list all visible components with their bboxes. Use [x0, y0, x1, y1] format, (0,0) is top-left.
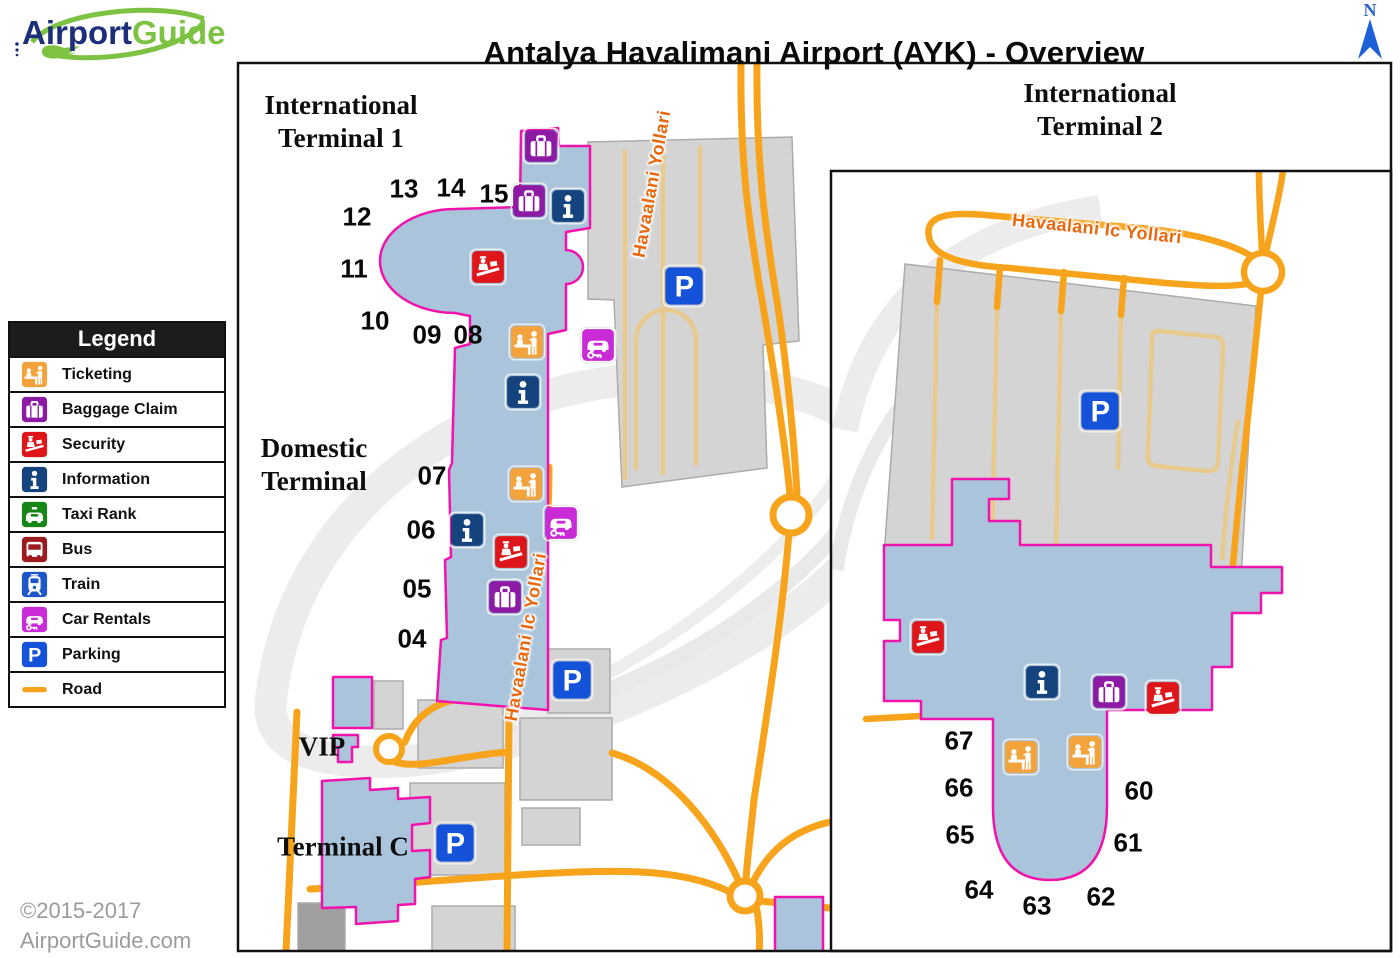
security-icon	[471, 250, 505, 284]
gate-08-label: 08	[454, 320, 483, 351]
logo-text-airport: Airport	[22, 14, 132, 51]
roundabout	[773, 497, 809, 533]
international-terminal-2-label: InternationalTerminal 2	[1023, 77, 1176, 143]
gate-09-label: 09	[413, 320, 442, 351]
copyright-site: AirportGuide.com	[20, 926, 191, 956]
building-dark	[298, 903, 345, 952]
gate-04-label: 04	[398, 624, 427, 655]
bus-icon	[21, 536, 48, 563]
parking-icon	[435, 823, 475, 863]
legend-item-label: Information	[62, 471, 150, 489]
gate-13-label: 13	[390, 174, 419, 205]
legend-row: Information	[10, 461, 224, 496]
logo-dot	[15, 42, 19, 46]
legend-item-label: Car Rentals	[62, 611, 151, 629]
legend-item-label: Security	[62, 436, 125, 454]
gate-67-label: 67	[945, 726, 974, 757]
building	[374, 681, 403, 729]
compass-n-label: N	[1344, 1, 1396, 19]
baggage-icon	[524, 129, 558, 163]
parking-icon	[21, 641, 48, 668]
gate-65-label: 65	[946, 820, 975, 851]
terminal-c-label: Terminal C	[277, 831, 409, 864]
gate-12-label: 12	[343, 202, 372, 233]
legend-row: Ticketing	[10, 356, 224, 391]
gate-66-label: 66	[945, 773, 974, 804]
gate-05-label: 05	[403, 574, 432, 605]
domestic-terminal-label: DomesticTerminal	[261, 432, 367, 498]
building	[520, 718, 612, 800]
legend-row: Baggage Claim	[10, 391, 224, 426]
gate-15-label: 15	[480, 179, 509, 210]
legend-rows: Ticketing Baggage Claim Security Informa…	[10, 356, 224, 706]
security-icon	[21, 431, 48, 458]
parking-icon	[664, 266, 704, 306]
vip-building	[333, 677, 372, 728]
gate-11-label: 11	[340, 254, 368, 285]
legend-row: Train	[10, 566, 224, 601]
roundabout	[730, 881, 760, 911]
gate-64-label: 64	[965, 875, 994, 906]
legend-row: Security	[10, 426, 224, 461]
legend-row: Road	[10, 671, 224, 706]
train-icon	[21, 571, 48, 598]
north-arrow-icon	[1355, 19, 1385, 59]
car-icon	[544, 506, 578, 540]
legend-item-label: Parking	[62, 646, 121, 664]
security-icon	[494, 535, 528, 569]
gate-60-label: 60	[1125, 776, 1154, 807]
gate-14-label: 14	[437, 173, 466, 204]
page-title: Antalya Havalimani Airport (AYK) - Overv…	[238, 35, 1390, 71]
info-icon	[21, 466, 48, 493]
legend-item-label: Train	[62, 576, 100, 594]
ticketing-icon	[21, 361, 48, 388]
ticketing-icon	[1068, 735, 1102, 769]
vip-loop-road	[376, 736, 402, 762]
gate-07-label: 07	[418, 461, 447, 492]
legend-item-label: Bus	[62, 541, 92, 559]
baggage-icon	[488, 580, 522, 614]
building-southeast	[775, 897, 823, 952]
legend-item-label: Ticketing	[62, 366, 132, 384]
gate-10-label: 10	[361, 306, 390, 337]
logo-dot	[15, 48, 18, 51]
building	[522, 808, 580, 845]
info-icon	[1025, 665, 1059, 699]
road-icon	[21, 676, 48, 703]
international-terminal-1-label: InternationalTerminal 1	[264, 89, 417, 155]
gate-63-label: 63	[1023, 891, 1052, 922]
ticketing-icon	[510, 325, 544, 359]
gate-62-label: 62	[1087, 882, 1116, 913]
info-icon	[450, 513, 484, 547]
info-icon	[506, 375, 540, 409]
legend-row: Bus	[10, 531, 224, 566]
legend-row: Car Rentals	[10, 601, 224, 636]
airport-map-page: AirportGuide Antalya Havalimani Airport …	[0, 0, 1400, 958]
legend-item-label: Road	[62, 681, 102, 699]
taxi-icon	[21, 501, 48, 528]
logo-dot	[16, 54, 19, 57]
svg-text:AirportGuide: AirportGuide	[22, 14, 226, 51]
vip-label: VIP	[299, 731, 346, 764]
parking-icon	[552, 660, 592, 700]
copyright-years: ©2015-2017	[20, 896, 191, 926]
security-icon	[911, 620, 945, 654]
baggage-icon	[21, 396, 48, 423]
info-icon	[551, 189, 585, 223]
roundabout-inset	[1244, 253, 1282, 291]
ticketing-icon	[509, 467, 543, 501]
security-icon	[1146, 681, 1180, 715]
legend-title: Legend	[10, 323, 224, 356]
gate-61-label: 61	[1114, 828, 1143, 859]
legend-row: Taxi Rank	[10, 496, 224, 531]
logo-text-guide: Guide	[132, 14, 226, 51]
building	[432, 906, 515, 952]
copyright: ©2015-2017 AirportGuide.com	[20, 896, 191, 955]
legend-row: Parking	[10, 636, 224, 671]
parking-icon	[1080, 391, 1120, 431]
ticketing-icon	[1004, 740, 1038, 774]
legend-item-label: Taxi Rank	[62, 506, 136, 524]
gate-06-label: 06	[407, 515, 436, 546]
legend-panel: Legend Ticketing Baggage Claim Security …	[8, 321, 226, 708]
car-icon	[21, 606, 48, 633]
baggage-icon	[1092, 675, 1126, 709]
car-icon	[581, 328, 615, 362]
airportguide-logo[interactable]: AirportGuide	[6, 2, 226, 68]
baggage-icon	[512, 184, 546, 218]
legend-item-label: Baggage Claim	[62, 401, 178, 419]
compass-north: N	[1344, 1, 1396, 64]
